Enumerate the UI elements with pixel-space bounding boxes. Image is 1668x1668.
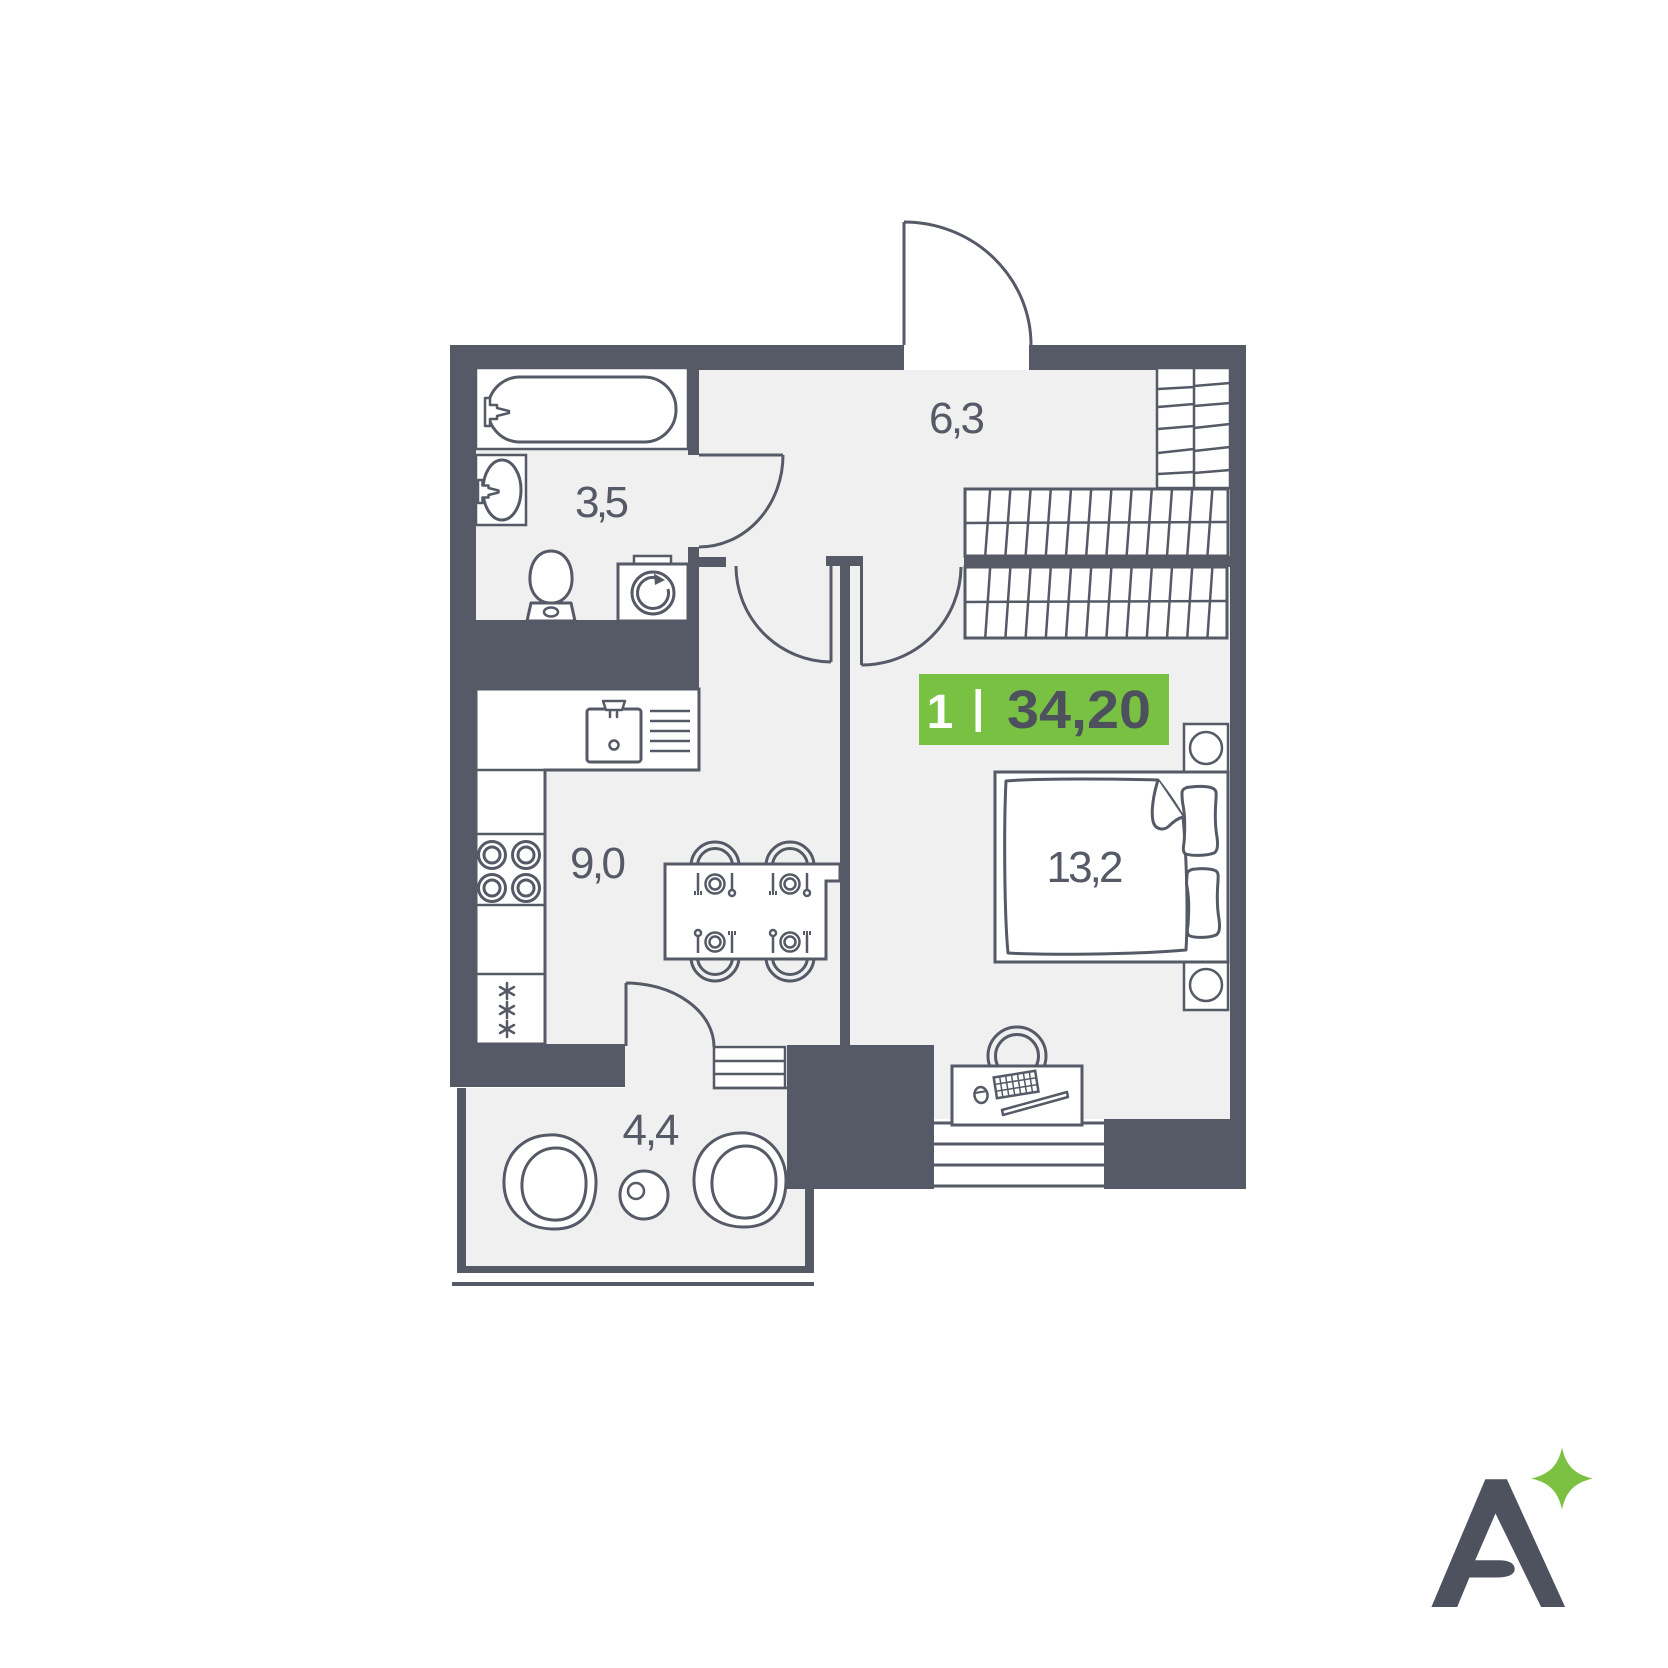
svg-text:4,4: 4,4 bbox=[623, 1106, 680, 1155]
svg-text:9,0: 9,0 bbox=[570, 839, 626, 888]
svg-text:1: 1 bbox=[927, 686, 954, 739]
svg-text:6,3: 6,3 bbox=[929, 394, 985, 443]
svg-text:3,5: 3,5 bbox=[575, 478, 629, 527]
svg-text:13,2: 13,2 bbox=[1047, 843, 1124, 892]
svg-text:34,20: 34,20 bbox=[1007, 680, 1151, 740]
